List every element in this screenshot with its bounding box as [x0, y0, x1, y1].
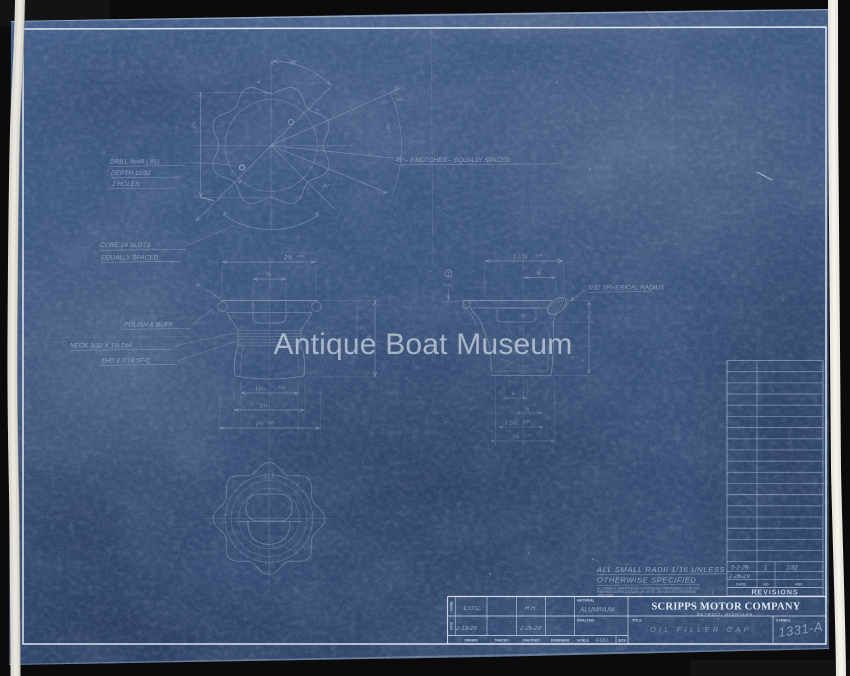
svg-text:SIZE: SIZE: [618, 639, 626, 643]
svg-text:DRILL №46 (.81): DRILL №46 (.81): [110, 159, 160, 166]
svg-text:⅝: ⅝: [311, 81, 315, 86]
svg-text:DEPTH 11/32: DEPTH 11/32: [111, 170, 151, 177]
svg-text:REV: REV: [795, 583, 803, 587]
svg-text:2 HOLES: 2 HOLES: [111, 181, 140, 188]
svg-text:2⅛: 2⅛: [192, 121, 198, 130]
svg-text:45°: 45°: [290, 60, 299, 66]
svg-text:TRACED: TRACED: [494, 639, 509, 643]
svg-text:ANALYSIS: ANALYSIS: [577, 619, 595, 623]
svg-text:ENGINEER: ENGINEER: [551, 639, 570, 643]
svg-text:SYMBOL: SYMBOL: [776, 619, 792, 623]
svg-text:1¾: 1¾: [260, 404, 268, 410]
svg-text:CORE 14 SLOTS: CORE 14 SLOTS: [100, 242, 152, 249]
svg-text:DIA: DIA: [524, 420, 531, 424]
svg-text:1/32: 1/32: [786, 566, 798, 572]
svg-text:2-26-29: 2-26-29: [519, 626, 541, 632]
svg-text:DETROIT, MICHIGAN.: DETROIT, MICHIGAN.: [697, 612, 755, 617]
svg-text:L.O.C.: L.O.C.: [464, 606, 481, 612]
svg-text:¾: ¾: [511, 392, 515, 398]
svg-text:1: 1: [447, 272, 450, 278]
svg-text:2⅜: 2⅜: [283, 256, 292, 262]
svg-text:1⅜: 1⅜: [512, 435, 520, 441]
svg-text:⅛: ⅛: [588, 311, 593, 315]
svg-text:TITLE: TITLE: [632, 619, 642, 623]
svg-text:DIA: DIA: [279, 386, 286, 390]
svg-text:2-13-29: 2-13-29: [455, 626, 477, 632]
svg-text:DATE: DATE: [450, 622, 454, 630]
svg-text:NECK 3/32 X 1⅞ DIA: NECK 3/32 X 1⅞ DIA: [70, 343, 132, 350]
svg-text:FULL: FULL: [596, 638, 609, 644]
svg-text:OTHERWISE SPECIFIED: OTHERWISE SPECIFIED: [597, 576, 696, 585]
svg-text:ALL SMALL RADII 1/16 UNLESS: ALL SMALL RADII 1/16 UNLESS: [596, 565, 725, 574]
svg-text:70°: 70°: [521, 313, 528, 318]
svg-text:EQUALLY SPACED: EQUALLY SPACED: [101, 255, 159, 262]
svg-text:5/32 SPHERICAL RADIUS: 5/32 SPHERICAL RADIUS: [588, 285, 665, 292]
svg-text:¾: ¾: [536, 271, 541, 277]
svg-text:DIA: DIA: [536, 253, 543, 258]
svg-text:45°: 45°: [322, 184, 330, 190]
svg-text:+.04: +.04: [443, 283, 451, 287]
svg-text:Antique Boat Museum: Antique Boat Museum: [274, 328, 573, 361]
svg-text:SCALE: SCALE: [577, 639, 590, 643]
svg-text:ALUMINUM: ALUMINUM: [579, 607, 615, 614]
svg-text:⅞: ⅞: [266, 273, 271, 279]
svg-text:DATE: DATE: [736, 583, 746, 587]
svg-text:REVISIONS: REVISIONS: [751, 589, 798, 596]
svg-text:R.H.: R.H.: [525, 606, 537, 612]
svg-text:2¼: 2¼: [255, 422, 264, 428]
svg-text:OIL FILLER CAP: OIL FILLER CAP: [650, 625, 752, 634]
svg-text:⅞: ⅞: [315, 107, 319, 112]
svg-text:DRAWN: DRAWN: [464, 639, 478, 643]
svg-text:NO: NO: [763, 583, 769, 587]
svg-text:DIA: DIA: [268, 421, 275, 425]
svg-text:POLISH & BUFF: POLISH & BUFF: [124, 322, 174, 329]
svg-text:NAME: NAME: [450, 601, 454, 610]
svg-text:2-26-29: 2-26-29: [728, 574, 750, 580]
svg-text:45°– 8 NOTCHES – EQUALLY SPACE: 45°– 8 NOTCHES – EQUALLY SPACED: [395, 156, 510, 164]
svg-text:1: 1: [764, 566, 767, 572]
svg-text:MATERIAL: MATERIAL: [577, 599, 596, 603]
svg-text:DIA: DIA: [525, 434, 532, 438]
svg-text:2 1/16: 2 1/16: [512, 255, 528, 261]
svg-text:+: +: [329, 117, 332, 122]
svg-text:DIA: DIA: [297, 254, 304, 259]
svg-text:1 1/32: 1 1/32: [505, 421, 519, 427]
svg-text:CHECKED: CHECKED: [522, 639, 540, 643]
svg-text:5-2-29: 5-2-29: [731, 566, 749, 572]
svg-text:1⅕ₖ: 1⅕ₖ: [255, 386, 266, 393]
svg-text:665: 665: [396, 97, 404, 102]
svg-text:THD 2 7/16 5F-C: THD 2 7/16 5F-C: [101, 358, 151, 365]
svg-text:⅛: ⅛: [196, 283, 201, 289]
